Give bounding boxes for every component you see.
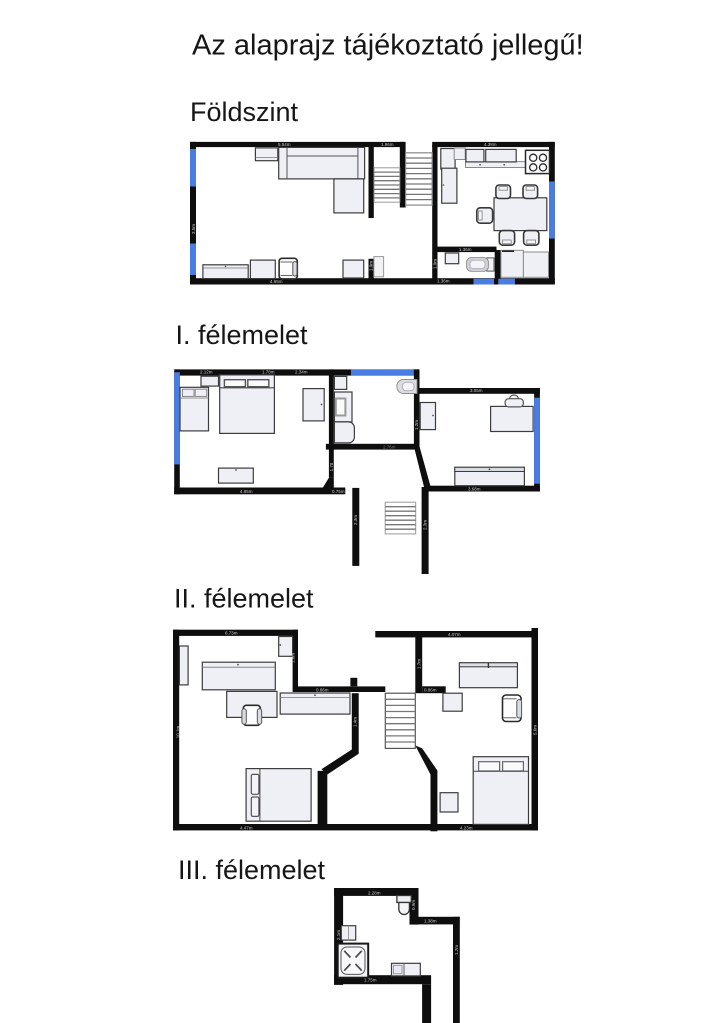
svg-text:1.78m: 1.78m	[262, 370, 275, 375]
svg-text:1.36m: 1.36m	[459, 247, 472, 252]
svg-text:1.36m: 1.36m	[437, 279, 450, 284]
svg-text:2.1m: 2.1m	[336, 930, 341, 940]
svg-text:0.9m: 0.9m	[411, 900, 416, 910]
svg-text:1.4m: 1.4m	[353, 717, 358, 727]
svg-text:0.86m: 0.86m	[424, 688, 437, 693]
svg-text:4.85m: 4.85m	[240, 489, 253, 494]
svg-text:1.7m: 1.7m	[416, 659, 421, 669]
svg-text:4.65m: 4.65m	[270, 279, 283, 284]
svg-text:1.2m: 1.2m	[414, 420, 419, 430]
svg-text:4.47m: 4.47m	[240, 825, 253, 830]
svg-text:3.05m: 3.05m	[470, 388, 483, 393]
svg-text:1.78: 1.78	[329, 462, 334, 471]
svg-text:5.6m: 5.6m	[533, 725, 538, 735]
svg-text:3.5m: 3.5m	[191, 224, 196, 234]
svg-text:2.12m: 2.12m	[200, 370, 213, 375]
svg-text:2.28m: 2.28m	[368, 890, 381, 895]
svg-text:2.3m: 2.3m	[423, 520, 428, 530]
svg-text:5.54m: 5.54m	[278, 142, 291, 147]
svg-text:6.73m: 6.73m	[225, 631, 238, 636]
svg-text:Földszint: Földszint	[190, 97, 299, 127]
svg-text:4.07m: 4.07m	[448, 632, 461, 637]
svg-text:3.68m: 3.68m	[468, 486, 481, 491]
svg-text:2.76m: 2.76m	[383, 444, 396, 449]
svg-text:1.9m: 1.9m	[369, 261, 374, 271]
svg-text:II. félemelet: II. félemelet	[174, 584, 314, 614]
svg-text:1.9m: 1.9m	[432, 259, 437, 269]
svg-text:I. félemelet: I. félemelet	[176, 320, 309, 350]
svg-text:10.1m: 10.1m	[176, 725, 181, 738]
svg-text:0.86m: 0.86m	[316, 688, 329, 693]
svg-text:1.38m: 1.38m	[424, 919, 437, 924]
svg-text:1.7m: 1.7m	[454, 945, 459, 955]
svg-text:1.75m: 1.75m	[364, 978, 377, 983]
svg-text:Az alaprajz tájékoztató jelleg: Az alaprajz tájékoztató jellegű!	[192, 30, 584, 62]
svg-text:4.38m: 4.38m	[484, 142, 497, 147]
svg-text:2.34m: 2.34m	[295, 370, 308, 375]
svg-text:III. félemelet: III. félemelet	[178, 855, 326, 885]
svg-text:2.3m: 2.3m	[353, 515, 358, 525]
svg-text:1.6m: 1.6m	[291, 653, 296, 663]
svg-text:4.23m: 4.23m	[460, 825, 473, 830]
svg-text:1.96m: 1.96m	[381, 142, 394, 147]
svg-text:0.75m: 0.75m	[332, 489, 345, 494]
